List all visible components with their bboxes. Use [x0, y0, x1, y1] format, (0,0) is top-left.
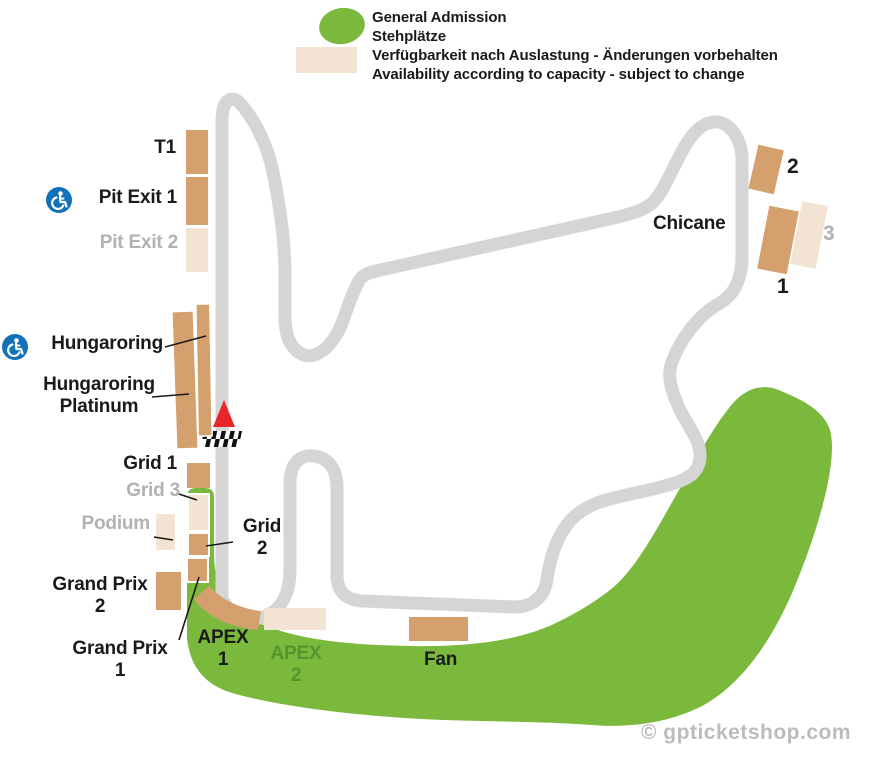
legend-general-admission-swatch: [316, 4, 368, 47]
grid-3-stand[interactable]: [188, 494, 209, 531]
t1-stand[interactable]: [186, 130, 208, 174]
grid-2-label: Grid 2: [232, 516, 292, 560]
chicane-3-label: 3: [823, 223, 834, 245]
chicane-label: Chicane: [653, 213, 726, 235]
grand-prix-2-label: Grand Prix 2: [20, 574, 180, 618]
pit-exit-1-label: Pit Exit 1: [99, 187, 177, 209]
chicane-1-label: 1: [777, 276, 788, 298]
grid-1-stand[interactable]: [187, 463, 210, 488]
fan-stand[interactable]: [409, 617, 468, 641]
grid-1-label: Grid 1: [123, 453, 177, 475]
apex-1-label: APEX 1: [193, 627, 253, 671]
pit-exit-2-label: Pit Exit 2: [100, 232, 178, 254]
wheelchair-icon: [46, 187, 72, 213]
pit-exit-2-stand[interactable]: [186, 228, 208, 272]
hungaroring-label: Hungaroring: [51, 333, 163, 355]
fan-label: Fan: [424, 649, 457, 671]
podium-stand[interactable]: [156, 514, 175, 550]
grand-prix-1-label: Grand Prix 1: [50, 638, 190, 682]
pit-exit-1-stand[interactable]: [186, 177, 208, 225]
hungaroring-stand[interactable]: [196, 304, 212, 436]
circuit-seating-map: General Admission Stehplätze Verfügbarke…: [0, 0, 871, 758]
wheelchair-icon: [2, 334, 28, 360]
watermark: © gpticketshop.com: [641, 721, 851, 745]
chicane-2-label: 2: [787, 156, 798, 178]
grid-2-stand[interactable]: [188, 533, 209, 556]
chicane-2-stand[interactable]: [748, 145, 783, 195]
apex-2-stand[interactable]: [264, 608, 326, 630]
podium-label: Podium: [82, 513, 150, 535]
t1-label: T1: [154, 137, 176, 159]
legend-availability-label: Verfügbarkeit nach Auslastung - Änderung…: [372, 46, 778, 84]
grid-3-label: Grid 3: [126, 480, 180, 502]
grand-prix-1-stand[interactable]: [187, 558, 208, 582]
legend-availability-swatch: [296, 47, 357, 73]
hungaroring-platinum-label: Hungaroring Platinum: [14, 374, 184, 418]
legend-general-admission-label: General Admission Stehplätze: [372, 8, 506, 46]
apex-2-label: APEX 2: [266, 643, 326, 687]
